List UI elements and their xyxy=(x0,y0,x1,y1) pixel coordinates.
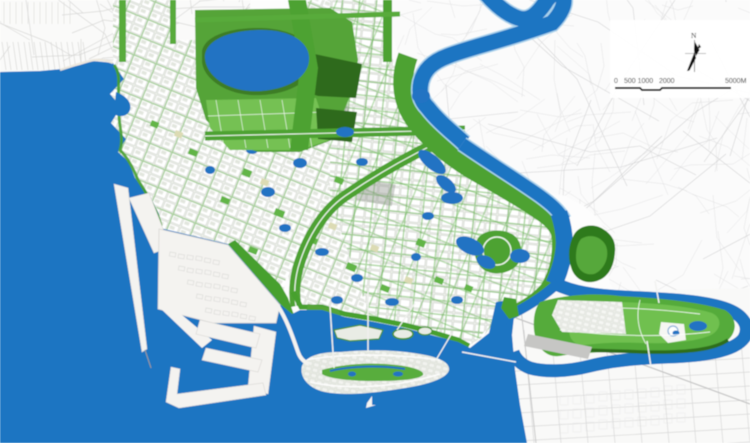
svg-text:500 1000: 500 1000 xyxy=(624,78,653,85)
svg-text:5000M: 5000M xyxy=(725,78,747,85)
svg-text:0: 0 xyxy=(614,78,618,85)
svg-text:N: N xyxy=(691,31,697,40)
svg-text:2000: 2000 xyxy=(659,78,675,85)
